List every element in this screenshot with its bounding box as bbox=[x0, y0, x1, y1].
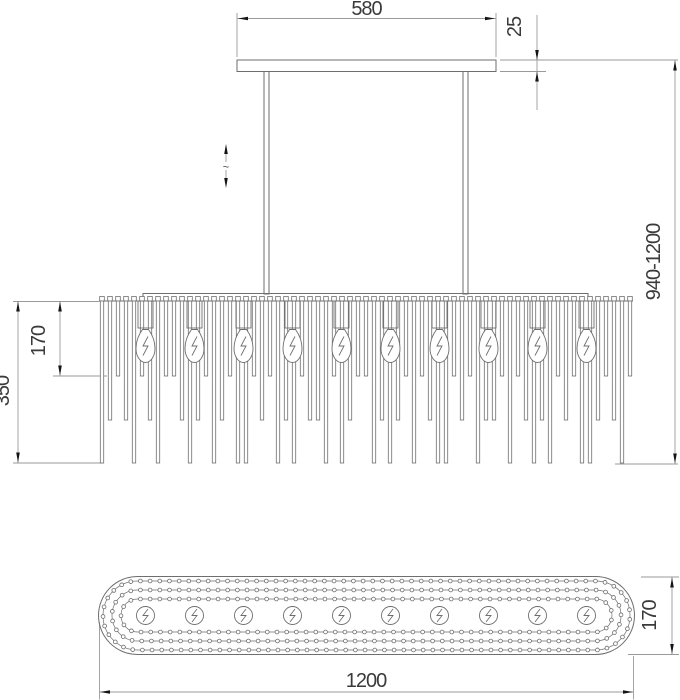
bead bbox=[103, 624, 107, 628]
bead bbox=[206, 579, 210, 583]
bead bbox=[112, 589, 116, 593]
crystal-rod bbox=[164, 301, 167, 376]
bead bbox=[506, 579, 510, 583]
bead bbox=[566, 648, 570, 652]
hanger-rod-right bbox=[463, 72, 468, 295]
bead bbox=[497, 579, 501, 583]
crystal-rod bbox=[548, 301, 551, 463]
bead bbox=[450, 630, 454, 634]
bead bbox=[276, 639, 280, 643]
crystal-rod bbox=[300, 301, 303, 376]
bead bbox=[256, 639, 260, 643]
crystal-rod bbox=[228, 301, 231, 376]
arrowhead-icon bbox=[535, 50, 539, 60]
bead bbox=[324, 630, 328, 634]
crystal-rod bbox=[132, 301, 135, 463]
bead bbox=[207, 630, 211, 634]
bead bbox=[303, 579, 307, 583]
bead bbox=[487, 579, 491, 583]
bead bbox=[605, 636, 609, 640]
bead-chain-rings bbox=[101, 579, 632, 652]
rod-cap bbox=[524, 297, 529, 302]
bead bbox=[121, 635, 125, 639]
bead bbox=[459, 597, 463, 601]
bead bbox=[470, 648, 474, 652]
bead bbox=[468, 588, 472, 592]
bead bbox=[429, 579, 433, 583]
bead bbox=[595, 597, 599, 601]
rod-cap bbox=[164, 297, 169, 302]
bead bbox=[265, 588, 269, 592]
bead bbox=[460, 648, 464, 652]
bead bbox=[401, 630, 405, 634]
bead bbox=[430, 597, 434, 601]
bead bbox=[106, 596, 110, 600]
rod-cap bbox=[300, 297, 305, 302]
bead bbox=[236, 597, 240, 601]
bead bbox=[188, 639, 192, 643]
bead bbox=[265, 630, 269, 634]
bead bbox=[352, 597, 356, 601]
bead bbox=[139, 630, 143, 634]
bead bbox=[140, 648, 144, 652]
bead bbox=[168, 588, 172, 592]
bead bbox=[334, 639, 338, 643]
rod-cap bbox=[572, 297, 577, 302]
bead bbox=[363, 648, 367, 652]
bead bbox=[227, 639, 231, 643]
bead bbox=[294, 630, 298, 634]
bead bbox=[362, 597, 366, 601]
bead bbox=[197, 588, 201, 592]
bead bbox=[197, 597, 201, 601]
label-fixture-depth: 170 bbox=[639, 599, 661, 630]
bead bbox=[537, 648, 541, 652]
bead bbox=[315, 648, 319, 652]
bead bbox=[333, 597, 337, 601]
arrowhead-icon bbox=[58, 366, 62, 376]
bead bbox=[469, 639, 473, 643]
bead bbox=[537, 639, 541, 643]
bead bbox=[158, 588, 162, 592]
bead bbox=[557, 639, 561, 643]
bead bbox=[294, 597, 298, 601]
crystal-rod bbox=[556, 301, 559, 376]
rod-cap bbox=[412, 297, 417, 302]
bead bbox=[266, 639, 270, 643]
bead bbox=[497, 588, 501, 592]
bead bbox=[352, 579, 356, 583]
bead bbox=[246, 639, 250, 643]
ceiling-canopy bbox=[237, 60, 496, 72]
bead bbox=[576, 648, 580, 652]
crystal-rod bbox=[244, 301, 247, 463]
bead bbox=[353, 639, 357, 643]
crystal-rod bbox=[292, 301, 295, 463]
rod-cap bbox=[236, 297, 241, 302]
bead bbox=[439, 579, 443, 583]
bead bbox=[441, 648, 445, 652]
bead bbox=[373, 639, 377, 643]
crystal-rod bbox=[620, 301, 623, 463]
bead bbox=[619, 613, 623, 617]
bead bbox=[139, 579, 143, 583]
bead bbox=[274, 588, 278, 592]
bead bbox=[266, 648, 270, 652]
bead bbox=[566, 639, 570, 643]
crystal-rod-curtain bbox=[100, 297, 633, 464]
bead bbox=[245, 597, 249, 601]
bead bbox=[305, 639, 309, 643]
bead bbox=[187, 588, 191, 592]
crystal-rod bbox=[564, 301, 567, 420]
bead bbox=[208, 648, 212, 652]
bead bbox=[594, 579, 598, 583]
bead bbox=[216, 597, 220, 601]
bead bbox=[477, 579, 481, 583]
rod-cap bbox=[532, 297, 537, 302]
bead bbox=[148, 588, 152, 592]
bead bbox=[218, 648, 222, 652]
bead bbox=[323, 588, 327, 592]
arrowhead-icon bbox=[58, 302, 62, 312]
crystal-rod bbox=[212, 301, 215, 463]
bead bbox=[478, 588, 482, 592]
crystal-rod bbox=[404, 301, 407, 376]
bead bbox=[545, 579, 549, 583]
crystal-rod bbox=[188, 301, 191, 463]
bead bbox=[362, 630, 366, 634]
bead bbox=[517, 588, 521, 592]
bead bbox=[612, 584, 616, 588]
bead bbox=[381, 597, 385, 601]
bead bbox=[565, 588, 569, 592]
bead bbox=[596, 630, 600, 634]
bead bbox=[198, 639, 202, 643]
rod-cap bbox=[268, 297, 273, 302]
bead bbox=[439, 588, 443, 592]
bead bbox=[188, 630, 192, 634]
crystal-rod bbox=[596, 301, 599, 420]
drawing-canvas: 580 25 940-1200 170 350 ~ 1200 170 bbox=[0, 0, 680, 700]
crystal-rod bbox=[500, 301, 503, 376]
bead bbox=[304, 597, 308, 601]
bead bbox=[410, 588, 414, 592]
bead bbox=[227, 630, 231, 634]
crystal-rod bbox=[364, 301, 367, 376]
rod-cap bbox=[124, 297, 129, 302]
bead bbox=[421, 648, 425, 652]
rod-cap bbox=[356, 297, 361, 302]
bead bbox=[585, 588, 589, 592]
bead bbox=[576, 639, 580, 643]
bead bbox=[206, 588, 210, 592]
rod-cap bbox=[452, 297, 457, 302]
bead bbox=[526, 579, 530, 583]
bead bbox=[586, 639, 590, 643]
bead bbox=[517, 597, 521, 601]
bead bbox=[276, 648, 280, 652]
bead bbox=[372, 597, 376, 601]
rod-cap bbox=[308, 297, 313, 302]
bottom-bulb-circles bbox=[137, 607, 596, 625]
bead bbox=[604, 590, 608, 594]
bead bbox=[499, 648, 503, 652]
bead bbox=[304, 630, 308, 634]
bead bbox=[575, 588, 579, 592]
arrowhead-icon bbox=[535, 72, 539, 82]
bead bbox=[332, 579, 336, 583]
rod-cap bbox=[364, 297, 369, 302]
bead bbox=[410, 579, 414, 583]
bead bbox=[170, 648, 174, 652]
rod-cap bbox=[332, 297, 337, 302]
bead bbox=[478, 597, 482, 601]
bead bbox=[468, 579, 472, 583]
bead bbox=[448, 579, 452, 583]
bead bbox=[499, 639, 503, 643]
bead bbox=[159, 639, 163, 643]
rod-cap bbox=[468, 297, 473, 302]
bead bbox=[574, 579, 578, 583]
bead bbox=[114, 600, 118, 604]
arrowhead-icon bbox=[224, 178, 228, 188]
bead bbox=[372, 630, 376, 634]
bead bbox=[557, 630, 561, 634]
hanger-rod-left bbox=[264, 72, 269, 295]
bead bbox=[371, 588, 375, 592]
bead bbox=[158, 579, 162, 583]
bead bbox=[274, 579, 278, 583]
arrowhead-icon bbox=[16, 453, 20, 463]
rod-cap bbox=[628, 297, 633, 302]
rod-cap bbox=[540, 297, 545, 302]
bead bbox=[431, 648, 435, 652]
bead bbox=[265, 597, 269, 601]
bead bbox=[119, 614, 123, 618]
bead bbox=[479, 648, 483, 652]
crystal-rod bbox=[508, 301, 511, 463]
rod-cap bbox=[116, 297, 121, 302]
bead bbox=[489, 648, 493, 652]
bead bbox=[332, 588, 336, 592]
bead bbox=[363, 639, 367, 643]
bead bbox=[382, 630, 386, 634]
bead bbox=[245, 588, 249, 592]
bead bbox=[342, 588, 346, 592]
crystal-rod bbox=[236, 301, 239, 463]
rod-cap bbox=[516, 297, 521, 302]
bead bbox=[518, 648, 522, 652]
rod-cap bbox=[204, 297, 209, 302]
bead bbox=[586, 648, 590, 652]
bead bbox=[528, 639, 532, 643]
bead bbox=[621, 635, 625, 639]
bead bbox=[479, 630, 483, 634]
bead bbox=[286, 648, 290, 652]
crystal-rod bbox=[420, 301, 423, 376]
bead bbox=[609, 609, 613, 613]
rod-cap bbox=[508, 297, 513, 302]
crystal-rod bbox=[220, 301, 223, 420]
bead bbox=[594, 588, 598, 592]
bead bbox=[489, 630, 493, 634]
rod-cap bbox=[428, 297, 433, 302]
bead bbox=[226, 579, 230, 583]
bead bbox=[605, 646, 609, 650]
rod-cap bbox=[556, 297, 561, 302]
bead bbox=[333, 630, 337, 634]
bead bbox=[217, 639, 221, 643]
bead bbox=[120, 583, 124, 587]
crystal-rod bbox=[628, 301, 631, 376]
bead bbox=[603, 580, 607, 584]
rod-cap bbox=[340, 297, 345, 302]
label-first-tier-drop: 170 bbox=[28, 325, 50, 356]
rod-cap bbox=[324, 297, 329, 302]
bead bbox=[313, 597, 317, 601]
bead bbox=[150, 639, 154, 643]
bead bbox=[381, 588, 385, 592]
bead bbox=[235, 588, 239, 592]
bead bbox=[342, 597, 346, 601]
bead bbox=[584, 579, 588, 583]
bead bbox=[547, 648, 551, 652]
bead bbox=[547, 639, 551, 643]
bead bbox=[508, 630, 512, 634]
bead bbox=[498, 630, 502, 634]
bead bbox=[216, 579, 220, 583]
rod-cap bbox=[564, 297, 569, 302]
rod-cap bbox=[180, 297, 185, 302]
bead bbox=[440, 630, 444, 634]
bead bbox=[576, 597, 580, 601]
bead bbox=[508, 639, 512, 643]
crystal-rod bbox=[388, 301, 391, 463]
bead bbox=[122, 623, 126, 627]
rod-cap bbox=[396, 297, 401, 302]
crystal-rod bbox=[324, 301, 327, 463]
bead bbox=[585, 597, 589, 601]
bead bbox=[129, 589, 133, 593]
bead bbox=[382, 639, 386, 643]
bead bbox=[255, 597, 259, 601]
bead bbox=[149, 630, 153, 634]
arrowhead-icon bbox=[100, 690, 110, 694]
bead bbox=[390, 579, 394, 583]
bead bbox=[362, 588, 366, 592]
crystal-rod bbox=[108, 301, 111, 420]
bead bbox=[488, 588, 492, 592]
bead bbox=[609, 618, 613, 622]
rod-cap bbox=[132, 297, 137, 302]
bead bbox=[430, 630, 434, 634]
bead bbox=[400, 588, 404, 592]
bead bbox=[586, 630, 590, 634]
bead bbox=[613, 631, 617, 635]
bead bbox=[555, 588, 559, 592]
bead bbox=[177, 597, 181, 601]
bead bbox=[314, 639, 318, 643]
bead bbox=[526, 588, 530, 592]
crystal-rod bbox=[356, 301, 359, 376]
arrowhead-icon bbox=[623, 690, 633, 694]
bead bbox=[140, 639, 144, 643]
bead bbox=[235, 579, 239, 583]
crystal-rod bbox=[580, 301, 583, 463]
crystal-rod bbox=[268, 301, 271, 376]
bead bbox=[314, 630, 318, 634]
bead bbox=[421, 630, 425, 634]
crystal-rod bbox=[156, 301, 159, 463]
bead bbox=[617, 604, 621, 608]
bead bbox=[237, 639, 241, 643]
bead bbox=[343, 639, 347, 643]
bead bbox=[236, 630, 240, 634]
bead bbox=[420, 597, 424, 601]
bead bbox=[114, 628, 118, 632]
bead bbox=[547, 630, 551, 634]
bead bbox=[245, 579, 249, 583]
bead bbox=[565, 579, 569, 583]
rod-cap bbox=[276, 297, 281, 302]
bead bbox=[237, 648, 241, 652]
rod-cap bbox=[228, 297, 233, 302]
bead bbox=[177, 579, 181, 583]
crystal-rod bbox=[204, 301, 207, 376]
bead bbox=[257, 648, 261, 652]
bead bbox=[179, 639, 183, 643]
crystal-rod bbox=[252, 301, 255, 376]
rod-cap bbox=[588, 297, 593, 302]
bead bbox=[226, 588, 230, 592]
bead bbox=[305, 648, 309, 652]
rod-cap bbox=[388, 297, 393, 302]
bead bbox=[129, 580, 133, 584]
label-body-drop: 350 bbox=[0, 375, 14, 406]
arrowhead-icon bbox=[673, 61, 677, 71]
rod-cap bbox=[500, 297, 505, 302]
bead bbox=[628, 608, 632, 612]
arrowhead-icon bbox=[670, 644, 674, 654]
bead bbox=[113, 640, 117, 644]
bead bbox=[489, 639, 493, 643]
bead bbox=[102, 605, 106, 609]
arrowhead-icon bbox=[485, 17, 495, 21]
crystal-rod bbox=[180, 301, 183, 420]
crystal-rod bbox=[460, 301, 463, 420]
bead bbox=[352, 588, 356, 592]
bead bbox=[528, 630, 532, 634]
bead bbox=[228, 648, 232, 652]
bead bbox=[122, 645, 126, 649]
rod-cap bbox=[460, 297, 465, 302]
rod-cap bbox=[188, 297, 193, 302]
bead bbox=[285, 639, 289, 643]
rod-cap bbox=[604, 297, 609, 302]
rod-cap bbox=[284, 297, 289, 302]
bead bbox=[226, 597, 230, 601]
bead bbox=[168, 597, 172, 601]
crystal-rod bbox=[532, 301, 535, 463]
arrowhead-icon bbox=[673, 454, 677, 464]
bead bbox=[537, 597, 541, 601]
rod-cap bbox=[148, 297, 153, 302]
bead bbox=[187, 579, 191, 583]
bead bbox=[373, 648, 377, 652]
rod-cap bbox=[620, 297, 625, 302]
bead bbox=[247, 648, 251, 652]
